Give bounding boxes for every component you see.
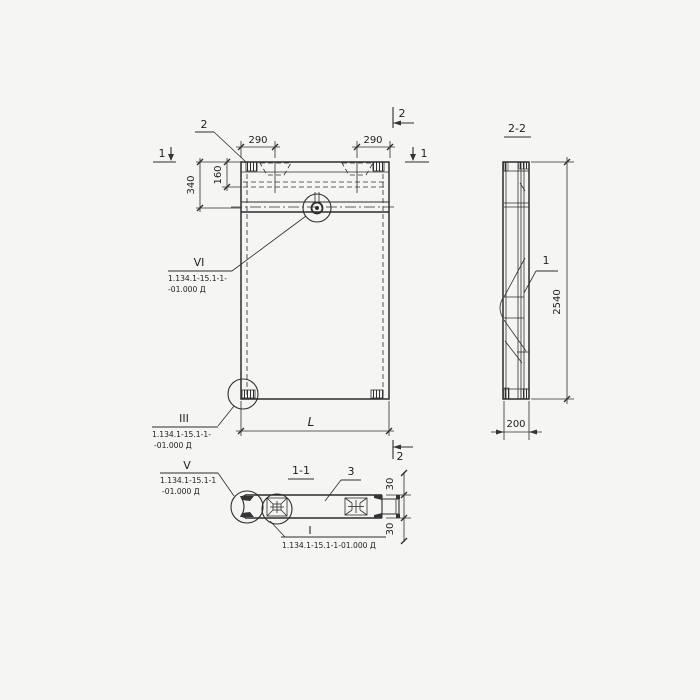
callout-iii-label: III [179, 412, 189, 425]
item-marker-2-top: 2 [195, 118, 246, 162]
callout-iii: III 1.134.1-15.1-1- -01.000 Д [152, 412, 218, 450]
dimension-30-top-bottom: 30 30 [385, 470, 411, 544]
leader-vi [232, 216, 306, 271]
callout-vi-label: VI [194, 256, 205, 269]
side-anchor-top-left [504, 162, 508, 171]
anchor-mark-top-right [373, 162, 384, 171]
bottom-view-title: 1-1 [292, 464, 310, 477]
dim-290-right-label: 290 [363, 135, 382, 146]
dim-160-label: 160 [213, 165, 224, 184]
callout-v-line1: 1.134.1-15.1-1 [160, 476, 216, 485]
dim-30-bottom-label: 30 [385, 523, 396, 536]
dim-length-label: L [308, 415, 315, 429]
callout-iii-line1: 1.134.1-15.1-1- [152, 430, 211, 439]
section-1-right-label: 1 [421, 147, 428, 160]
callout-v: V 1.134.1-15.1-1 -01.000 Д [160, 459, 234, 496]
section-2-bottom-label: 2 [397, 450, 404, 463]
dim-2540-label: 2540 [552, 289, 563, 314]
callout-vi-line2: -01.000 Д [168, 285, 206, 294]
item-3-label: 3 [348, 465, 355, 478]
side-profile-outline [503, 162, 529, 399]
dimension-160-340: 160 340 [186, 158, 241, 212]
side-anchor-top-right [519, 162, 529, 169]
strip-opening [345, 498, 367, 515]
item-2-label: 2 [201, 118, 208, 131]
dim-290-left-label: 290 [248, 135, 267, 146]
anchor-box [262, 494, 292, 524]
leader-iii [218, 406, 234, 426]
dimension-200: 200 [491, 401, 542, 440]
side-view: 2-2 1 [491, 122, 574, 440]
dimension-290-right: 290 [352, 135, 395, 158]
callout-iii-line2: -01.000 Д [154, 441, 192, 450]
bottom-view: 1-1 [231, 464, 411, 544]
side-anchor-bottom-right [521, 389, 529, 399]
dimension-290-left: 290 [236, 135, 280, 158]
callout-vi: VI 1.134.1-15.1-1- -01.000 Д [168, 256, 232, 294]
technical-drawing: 290 290 160 340 [0, 0, 700, 700]
anchor-mark-bottom-left [242, 390, 255, 398]
shear-key-profile [500, 258, 529, 363]
wedge-bottom-left [240, 512, 254, 517]
section-marker-1-right: 1 [405, 147, 429, 162]
callout-i-line1: 1.134.1-15.1-1-01.000 Д [282, 541, 376, 550]
callout-i-label: I [308, 524, 311, 537]
side-anchor-bottom-left [504, 388, 509, 399]
dimension-2540: 2540 [531, 157, 574, 404]
section-marker-2-right: 2 [393, 107, 414, 128]
callout-vi-line1: 1.134.1-15.1-1- [168, 274, 227, 283]
dim-200-label: 200 [506, 419, 525, 430]
callout-v-label: V [183, 459, 191, 472]
side-view-title: 2-2 [508, 122, 526, 135]
anchor-mark-bottom-right [371, 390, 383, 398]
callout-i: I 1.134.1-15.1-1-01.000 Д [270, 521, 386, 550]
recess-left [260, 163, 291, 175]
dimension-length: L [236, 401, 394, 436]
section-2-right-label: 2 [399, 107, 406, 120]
dim-30-top-label: 30 [385, 478, 396, 491]
section-1-left-label: 1 [159, 147, 166, 160]
anchor-mark-top-left [246, 162, 257, 171]
section-marker-2-bottom: 2 [393, 440, 413, 463]
section-marker-1-left: 1 [153, 147, 176, 162]
strip-right-end [374, 495, 400, 518]
callouts: VI 1.134.1-15.1-1- -01.000 Д III 1.134.1… [152, 256, 386, 550]
callout-v-line2: -01.000 Д [162, 487, 200, 496]
blueprint-page: 290 290 160 340 [0, 0, 700, 700]
item-1-label: 1 [543, 254, 550, 267]
dim-340-label: 340 [186, 175, 197, 194]
recess-right [342, 163, 373, 175]
